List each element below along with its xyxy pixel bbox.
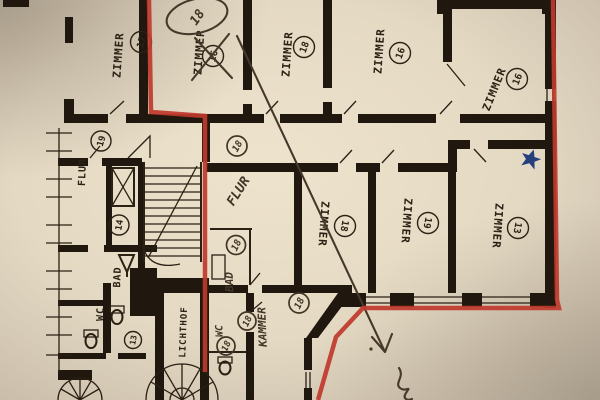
floorplan-drawing: ZIMMER 17 ZIMMER 16 ZIMMER 18 ZIMMER 16 … [0,0,600,400]
room-number: 18 [338,219,351,232]
floorplan-photo: ZIMMER 17 ZIMMER 16 ZIMMER 18 ZIMMER 16 … [0,0,600,400]
hall-label: FLUR [77,158,89,186]
pencil-dot [369,347,372,350]
wc-label: WC [95,307,106,321]
hand-bath-label: BAD [223,271,237,293]
room-number: 19 [421,216,434,229]
bath-label: BAD [112,266,124,287]
room-number: 13 [511,221,524,234]
lightwell-label: LICHTHOF [178,306,190,358]
hand-chamber-label: KAMMER [255,307,269,349]
hand-wc-label: WC [214,325,225,337]
room-number: 13 [128,334,139,345]
